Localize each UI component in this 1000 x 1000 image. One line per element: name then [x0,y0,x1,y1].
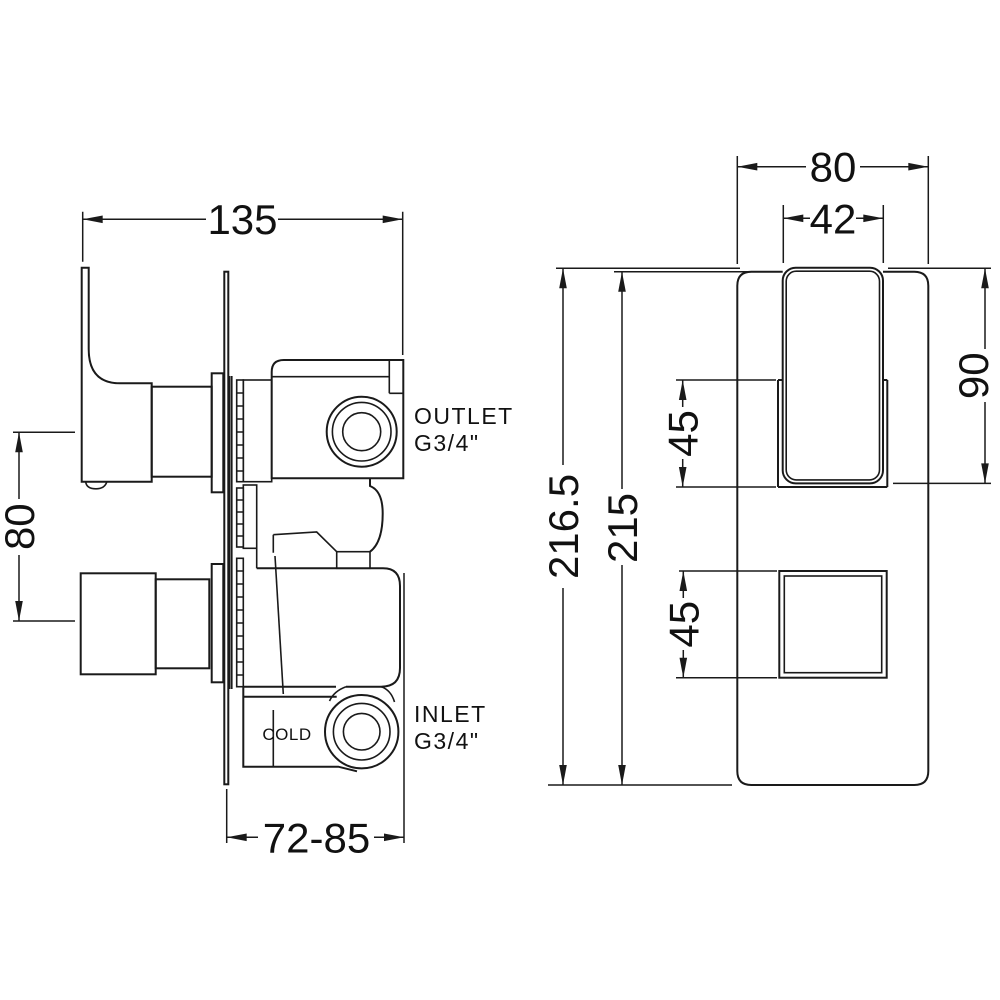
dim-135-text: 135 [207,196,277,243]
front-view-dimensions [548,156,991,785]
dim-45-top-arrow-down [679,467,687,487]
side-bridge-step [337,552,370,569]
side-inlet-port-inner [343,713,380,750]
side-bottom-escutcheon [212,564,224,682]
dim-72-85-text: 72-85 [263,814,370,861]
dim-72-85-arrow-right [384,834,404,842]
dim-80-arrow-bottom [15,601,23,621]
dim-90-arrow-top [981,268,989,288]
side-view [81,268,404,785]
side-spout-link [257,532,337,568]
inlet-label-line1: INLET [414,701,487,727]
dim-90-arrow-bottom [981,463,989,483]
dim-135-arrow-left [83,216,103,224]
dim-45-bottom-arrow-down [680,658,688,678]
dim-42-text: 42 [810,195,857,242]
dim-216-5-arrow-top [559,268,567,288]
dim-135-arrow-right [383,216,403,224]
side-inlet-port-mid [333,703,390,760]
front-face-plate [737,272,928,785]
side-sleeve-mid [237,488,244,547]
dim-45-bottom-arrow-up [680,571,688,591]
side-lever-grip-tip [86,482,107,489]
side-lever-handle [82,268,152,482]
side-body-bridge [370,478,383,551]
dim-45-top-text: 45 [660,410,707,457]
dim-215-arrow-bottom [618,765,626,785]
shower-valve-technical-drawing: 135 80 72-85 OUTLET G3/4" INLET G3/4" CO… [0,0,1000,1000]
front-square-outer [779,571,886,678]
dim-90-text: 90 [950,352,997,399]
side-cartridge-nut-top [243,380,271,482]
dim-80-arrow-top [15,432,23,452]
dim-216-5-text: 216.5 [540,474,587,579]
side-view-dimensions [13,212,404,843]
front-handle-outer [783,268,883,484]
side-inlet-port-outer [325,695,398,768]
side-behind-plate-lines [230,376,232,689]
side-bottom-stem [156,579,210,668]
side-outlet-port-inner [343,413,381,451]
side-wall-plate [224,272,228,785]
dim-45-bottom-text: 45 [660,601,707,648]
side-sleeve-top [237,380,244,482]
side-sleeve-mid-ticks [237,500,244,536]
side-outlet-body [272,360,404,478]
side-sleeve-bottom-ticks [237,571,244,675]
dim-215-text: 215 [599,493,646,563]
side-outlet-body-details [272,360,404,393]
side-cartridge-nut-mid [243,485,256,548]
inlet-label-line2: G3/4" [414,728,480,754]
outlet-label-line2: G3/4" [414,430,480,456]
drawing-text: 135 80 72-85 OUTLET G3/4" INLET G3/4" CO… [0,144,997,862]
technical-drawing-page: 135 80 72-85 OUTLET G3/4" INLET G3/4" CO… [0,0,1000,1000]
dim-front-80-text: 80 [810,144,857,191]
outlet-label-line1: OUTLET [414,403,514,429]
dim-front-80-arrow-left [737,163,757,171]
side-inlet-body [243,568,400,686]
side-outlet-port-mid [332,402,391,461]
side-outlet-port-outer [327,397,397,467]
dim-80-side-text: 80 [0,503,43,550]
side-bottom-knob [81,573,156,674]
dim-45-top-arrow-up [679,380,687,400]
front-escutcheon-tabs [778,380,887,487]
cold-label: COLD [262,725,311,744]
dim-216-5-arrow-bottom [559,765,567,785]
dim-42-arrow-left [783,215,803,223]
side-top-stem [152,387,212,477]
front-view [737,268,928,785]
dim-215-arrow-top [618,272,626,292]
side-inlet-cone [275,556,283,694]
side-top-escutcheon [212,373,224,492]
front-square-inner [784,576,881,673]
dim-front-80-arrow-right [908,163,928,171]
dim-42-arrow-right [863,215,883,223]
side-sleeve-top-ticks [237,393,244,471]
dim-72-85-arrow-left [227,834,247,842]
front-handle-inner [786,271,879,480]
